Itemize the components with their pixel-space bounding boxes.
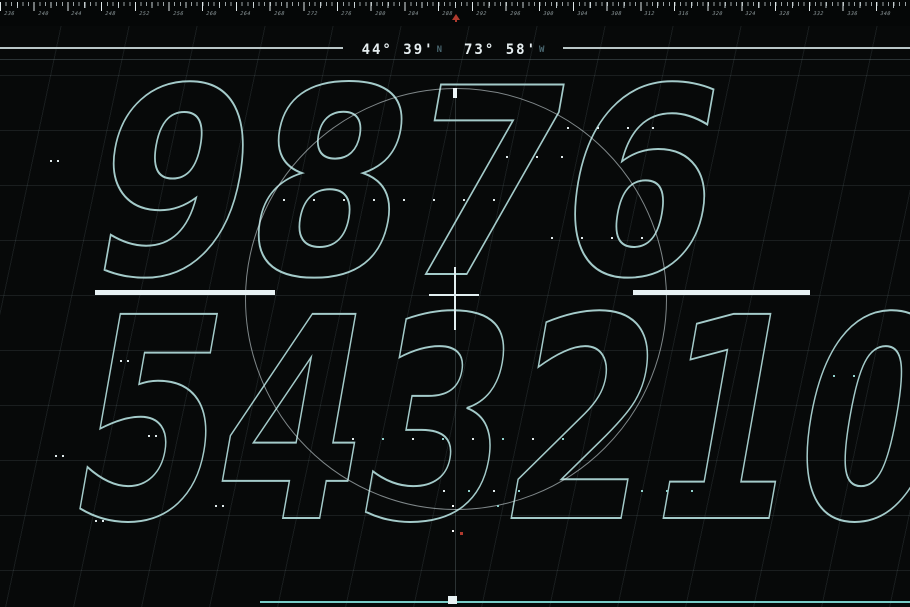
ruler-tick-label: 284 <box>407 11 439 18</box>
reticle-top-tick <box>453 88 457 98</box>
ruler-tick-label: 324 <box>744 11 776 18</box>
heading-marker-stem <box>455 20 457 22</box>
ruler-tick-label: 268 <box>273 11 305 18</box>
ruler-tick-label: 340 <box>879 11 910 18</box>
reference-bar-left <box>95 290 275 295</box>
reticle-circle <box>245 88 667 510</box>
hud-screen: 2362402442482522562602642682722762802842… <box>0 0 910 607</box>
ruler-tick-label: 248 <box>104 11 136 18</box>
ruler-tick-label: 332 <box>812 11 844 18</box>
ruler-tick-label: 292 <box>475 11 507 18</box>
ruler-major-ticks <box>0 2 910 11</box>
ruler-tick-label: 320 <box>711 11 743 18</box>
marker-dot-red <box>460 532 463 535</box>
ruler-tick-label: 336 <box>846 11 878 18</box>
marker-dots-teal <box>0 0 2 2</box>
ruler-tick-label: 312 <box>643 11 675 18</box>
ruler-tick-label: 308 <box>610 11 642 18</box>
ruler-tick-label: 256 <box>172 11 204 18</box>
crosshair-vertical <box>454 267 456 330</box>
bottom-baseline <box>260 601 910 603</box>
ruler-tick-label: 296 <box>509 11 541 18</box>
ruler-tick-label: 236 <box>3 11 35 18</box>
crosshair-horizontal <box>429 294 479 296</box>
ruler-tick-label: 244 <box>70 11 102 18</box>
reference-bar-right <box>633 290 810 295</box>
ruler-tick-label: 280 <box>374 11 406 18</box>
heading-ruler: 2362402442482522562602642682722762802842… <box>0 0 910 26</box>
ruler-tick-label: 304 <box>576 11 608 18</box>
ruler-tick-label: 276 <box>340 11 372 18</box>
bottom-center-tick <box>448 596 457 604</box>
ruler-tick-label: 264 <box>239 11 271 18</box>
ruler-tick-label: 316 <box>677 11 709 18</box>
ruler-tick-label: 272 <box>306 11 338 18</box>
ruler-tick-label: 328 <box>778 11 810 18</box>
ruler-tick-label: 260 <box>205 11 237 18</box>
ruler-tick-label: 252 <box>138 11 170 18</box>
ruler-tick-label: 240 <box>37 11 69 18</box>
ruler-tick-label: 300 <box>542 11 574 18</box>
